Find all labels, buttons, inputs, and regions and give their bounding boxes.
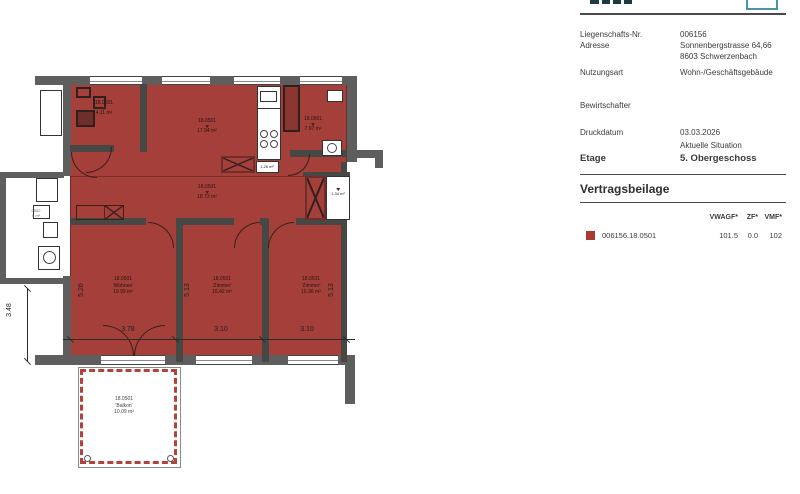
window — [196, 355, 252, 365]
field-label: Liegenschafts-Nr. — [580, 30, 642, 39]
wall-segment — [347, 76, 357, 162]
etage-value: 5. Obergeschoss — [680, 153, 757, 164]
kitchen-sink — [260, 91, 277, 102]
stairwell-box — [43, 222, 58, 238]
washbasin — [327, 143, 337, 153]
divider — [580, 202, 786, 203]
stove-burner — [260, 140, 268, 148]
room-label-duct: 1.26 m² — [260, 164, 274, 169]
room-area: 7.97 m² — [304, 126, 322, 133]
room-unit: 18.0501 — [113, 276, 133, 283]
logo-cutoff — [624, 0, 632, 4]
col-header-vmf: VMF* — [762, 214, 782, 221]
closet — [76, 110, 95, 127]
elevator-shaft — [305, 176, 326, 220]
balcony-post — [84, 455, 91, 462]
room-unit: 18.0501 — [95, 100, 113, 107]
col-header-vwagf: VWAGF* — [700, 214, 738, 221]
wall-segment — [0, 278, 64, 284]
washer-drum — [43, 251, 56, 264]
wall-segment — [176, 218, 234, 225]
room-label-wc: 1.34 m² — [331, 188, 345, 196]
logo-cutoff — [613, 0, 621, 4]
wall-segment — [375, 158, 383, 168]
floorplan-document-page: 18.0501 4.11 m² 18.0501 17.94 m² 18.0501… — [0, 0, 800, 494]
stairwell-box — [36, 178, 58, 202]
room-label-zimmer2: 18.0501 'Zimmer' 16.36 m² — [301, 276, 321, 296]
wall-segment — [260, 218, 269, 225]
field-value: 8603 Schwerzenbach — [680, 52, 757, 61]
field-label: Bewirtschafter — [580, 101, 631, 110]
wall-segment — [63, 276, 71, 365]
room-area: 1.34 m² — [331, 191, 345, 196]
logo-cutoff — [590, 0, 599, 4]
room-area: 10.09 m² — [114, 409, 134, 416]
field-label: Druckdatum — [580, 128, 623, 137]
room-unit: 18.0501 — [197, 184, 217, 191]
logo-cutoff — [602, 0, 610, 4]
wall-segment — [345, 362, 355, 404]
wall-segment — [0, 172, 6, 284]
room-label-entry: 18.0501 4.11 m² — [95, 100, 113, 116]
wall-segment — [63, 84, 71, 176]
stove-burner — [270, 140, 278, 148]
room-area: 18.73 m² — [197, 194, 217, 201]
etage-label: Etage — [580, 153, 606, 164]
wc-room — [326, 176, 350, 220]
room-label-bath: 18.0501 7.97 m² — [304, 116, 322, 132]
value-vwagf: 101.5 — [700, 231, 738, 240]
room-label-wohnen: 18.0501 'Wohnen' 19.99 m² — [113, 276, 133, 296]
window — [90, 76, 142, 85]
stove-burner — [260, 130, 268, 138]
dimension-line — [27, 288, 28, 362]
room-unit: 18.0501 — [197, 118, 217, 125]
value-zf: 0.0 — [742, 231, 758, 240]
kitchen-counter-divider — [257, 108, 281, 109]
value-vmf: 102 — [762, 231, 782, 240]
info-panel: Liegenschafts-Nr. 006156 Adresse Sonnenb… — [570, 0, 800, 494]
room-unit: 18.0501 — [301, 276, 321, 283]
dimension-text: 5.26 — [77, 275, 87, 305]
divider — [580, 174, 786, 175]
room-area: 16.42 m² — [212, 289, 232, 296]
balcony-door-opening — [101, 355, 165, 365]
room-unit: 18.0501 — [114, 396, 134, 403]
closet — [76, 87, 91, 98]
field-value: Aktuelle Situation — [680, 141, 742, 150]
field-label: Adresse — [580, 41, 609, 50]
room-unit: 18.0501 — [212, 276, 232, 283]
dimension-text: 3.10 — [300, 326, 314, 333]
window — [300, 76, 342, 85]
stove-burner — [270, 130, 278, 138]
unit-id: 006156.18.0501 — [602, 231, 656, 240]
room-area: 16.36 m² — [301, 289, 321, 296]
corridor-divider-line — [70, 176, 307, 177]
divider — [580, 13, 786, 15]
dimension-text: 3.78 — [121, 326, 135, 333]
col-header-zf: ZF* — [742, 214, 758, 221]
field-label: Nutzungsart — [580, 68, 623, 77]
neighbor-window-box — [40, 90, 62, 136]
duct-shaft — [221, 156, 255, 173]
room-label-neighbor: 0502 0 m² — [32, 208, 41, 218]
field-value: Wohn-/Geschäftsgebäude — [680, 68, 773, 77]
section-title: Vertragsbeilage — [580, 182, 669, 196]
room-area: 17.94 m² — [197, 128, 217, 135]
dimension-line — [63, 339, 355, 340]
window — [288, 355, 338, 365]
room-label-zimmer1: 18.0501 'Zimmer' 16.42 m² — [212, 276, 232, 296]
dimension-text: 5.13 — [327, 275, 337, 305]
wall-segment — [357, 150, 383, 158]
floorplan-drawing: 18.0501 4.11 m² 18.0501 17.94 m² 18.0501… — [0, 0, 565, 494]
field-value: 006156 — [680, 30, 707, 39]
room-area: 4.11 m² — [95, 110, 113, 117]
field-value: 03.03.2026 — [680, 128, 720, 137]
room-label-corridor: 18.0501 18.73 m² — [197, 184, 217, 200]
dimension-text: 3.48 — [5, 295, 15, 325]
window — [234, 76, 280, 85]
wall-segment — [140, 84, 147, 152]
field-value: Sonnenbergstrasse 64,66 — [680, 41, 772, 50]
header-icon-button[interactable] — [746, 0, 778, 10]
room-area: 1.26 m² — [260, 164, 274, 169]
room-label-kitchen: 18.0501 17.94 m² — [197, 118, 217, 134]
kitchen-tall-cabinet — [283, 85, 300, 132]
wardrobe-x-hatch — [104, 205, 124, 220]
bath-cabinet — [327, 90, 343, 102]
balcony-post — [167, 455, 174, 462]
room-area: 19.99 m² — [113, 289, 133, 296]
room-unit: 18.0501 — [304, 116, 322, 123]
dimension-text: 5.13 — [183, 275, 193, 305]
unit-color-swatch — [586, 231, 595, 240]
dimension-text: 3.10 — [214, 326, 228, 333]
room-label-balkon: 18.0501 'Balkon' 10.09 m² — [114, 396, 134, 416]
balcony-railing — [80, 369, 177, 464]
window — [162, 76, 210, 85]
room-area: 0 m² — [32, 213, 41, 218]
